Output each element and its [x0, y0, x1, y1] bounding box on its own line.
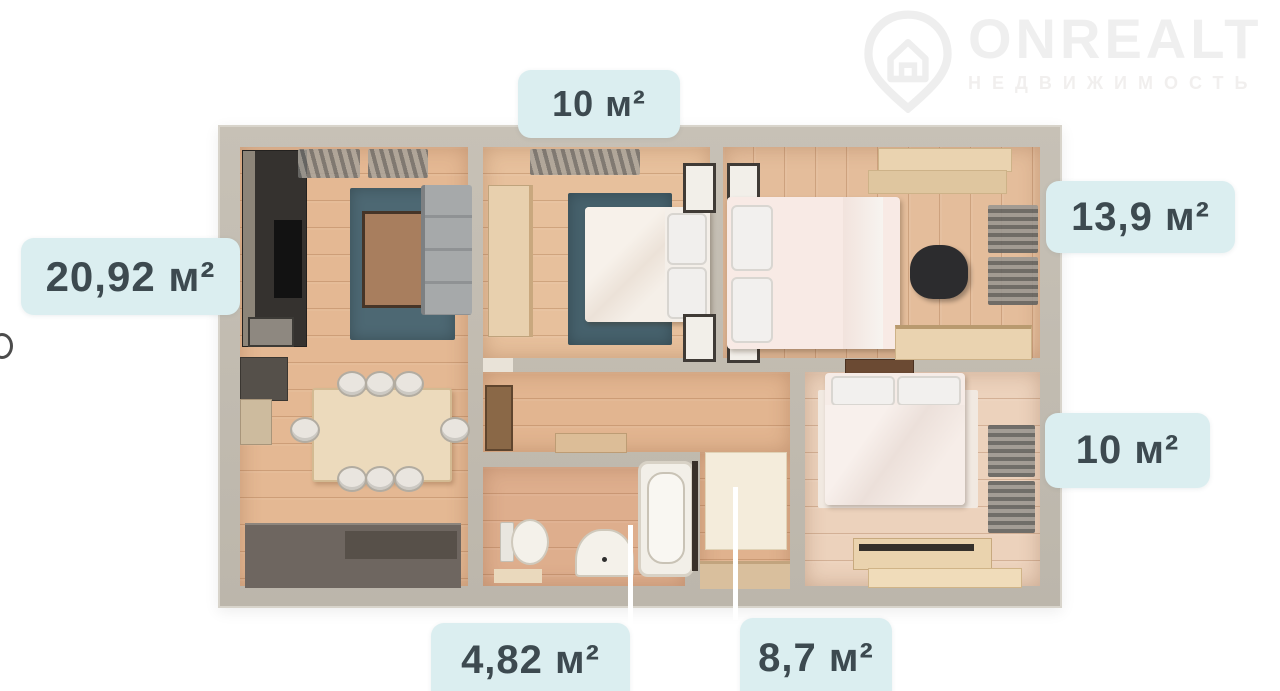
duvet	[585, 207, 665, 322]
sink	[575, 529, 634, 577]
desk	[868, 170, 1007, 194]
dining-chair	[365, 466, 395, 492]
watermark-brand: ONREALT	[968, 10, 1263, 69]
edge-artifact	[0, 333, 13, 359]
nightstand	[683, 163, 716, 213]
house-location-pin-icon	[862, 10, 954, 113]
area-badge-bedroom-right-bottom: 10 м²	[1045, 413, 1210, 488]
pillow	[897, 376, 961, 406]
watermark-text-block: ONREALT НЕДВИЖИМОСТЬ	[968, 10, 1263, 94]
hallway-floor	[483, 372, 790, 452]
sideboard	[245, 523, 461, 588]
wall-shelf	[878, 148, 1012, 172]
sideboard-panel	[345, 531, 457, 559]
leader-line-hallway	[733, 487, 738, 620]
low-cabinet	[895, 325, 1032, 360]
pillow	[731, 205, 773, 271]
curtains-bedroom-right-2	[988, 257, 1038, 305]
dining-chair	[440, 417, 470, 443]
area-badge-bedroom-top: 10 м²	[518, 70, 680, 138]
sofa	[421, 185, 472, 315]
pillow	[731, 277, 773, 343]
area-badge-bathroom: 4,82 м²	[431, 623, 630, 691]
nightstand	[683, 314, 716, 362]
onrealt-watermark: ONREALT НЕДВИЖИМОСТЬ	[862, 10, 1263, 113]
leader-line-bathroom	[628, 525, 633, 625]
dining-chair	[337, 466, 367, 492]
curtains-bedroom-top	[530, 149, 640, 175]
bed-bottom	[825, 373, 965, 505]
bathtub-basin	[647, 472, 685, 564]
dining-chair	[337, 371, 367, 397]
floor-plan	[218, 125, 1062, 608]
area-badge-hallway: 8,7 м²	[740, 618, 892, 691]
area-badge-bedroom-right-top: 13,9 м²	[1046, 181, 1235, 253]
sink-drain	[602, 557, 607, 562]
curtains-bedroom-right	[988, 205, 1038, 253]
dresser-top-strip	[859, 544, 974, 551]
watermark-subtitle: НЕДВИЖИМОСТЬ	[968, 73, 1258, 94]
dining-chair	[290, 417, 320, 443]
counter-ledge	[700, 561, 790, 589]
toilet-bowl	[511, 519, 549, 565]
pillow	[667, 267, 707, 319]
shower-screen	[692, 461, 698, 571]
curtains-living	[298, 149, 360, 178]
coffee-table	[362, 211, 424, 308]
tv-screen	[274, 220, 302, 298]
doormat	[555, 433, 627, 453]
speaker	[248, 317, 294, 347]
pillow	[831, 376, 895, 406]
bathtub	[638, 461, 694, 577]
bath-mat	[494, 569, 542, 583]
curtains-bedroom-bottom	[988, 425, 1035, 477]
dining-chair	[394, 371, 424, 397]
dresser	[853, 538, 992, 570]
screenshot-canvas: ONREALT НЕДВИЖИМОСТЬ	[0, 0, 1280, 691]
duvet-fold	[825, 405, 965, 505]
bed-right	[727, 197, 900, 349]
wardrobe	[488, 185, 533, 337]
curtains-bedroom-bottom-2	[988, 481, 1035, 533]
tile-area	[705, 452, 787, 550]
pillow	[667, 213, 707, 265]
curtains-living-2	[368, 149, 428, 178]
area-badge-living-room: 20,92 м²	[21, 238, 240, 315]
wall-shelf-lower	[240, 399, 272, 445]
open-door-leaf	[485, 385, 513, 451]
office-chair	[910, 245, 968, 299]
dresser-lower	[868, 568, 1022, 588]
door-opening	[483, 358, 513, 372]
wall-shelf-cabinet	[240, 357, 288, 401]
dining-chair	[394, 466, 424, 492]
dining-chair	[365, 371, 395, 397]
door-threshold	[845, 359, 914, 374]
bed-top	[585, 207, 710, 322]
bed-sheet-fold	[843, 197, 883, 349]
